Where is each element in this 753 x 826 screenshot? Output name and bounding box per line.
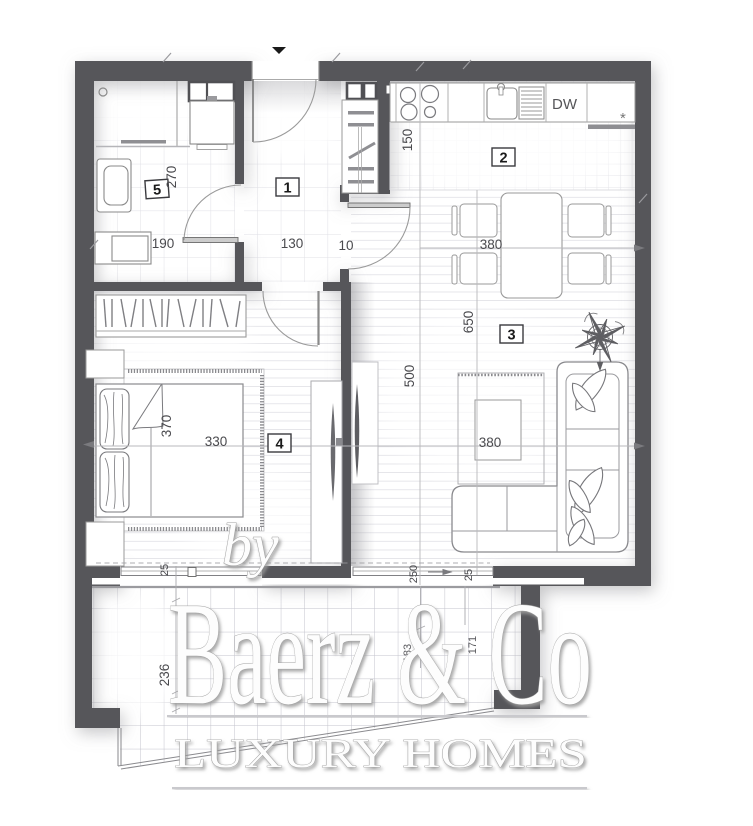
- svg-text:2: 2: [499, 151, 507, 167]
- svg-text:by: by: [222, 512, 279, 578]
- svg-text:LUXURY HOMES: LUXURY HOMES: [174, 730, 587, 776]
- svg-text:10: 10: [338, 238, 353, 253]
- svg-text:330: 330: [205, 434, 228, 449]
- svg-text:3: 3: [507, 328, 515, 344]
- svg-text:130: 130: [281, 236, 304, 251]
- svg-text:4: 4: [275, 437, 283, 453]
- svg-text:380: 380: [479, 435, 502, 450]
- svg-text:5: 5: [153, 182, 162, 199]
- svg-text:650: 650: [461, 311, 476, 334]
- svg-text:380: 380: [480, 237, 503, 252]
- svg-text:370: 370: [159, 415, 174, 438]
- svg-text:270: 270: [164, 166, 179, 189]
- svg-text:500: 500: [402, 365, 417, 388]
- svg-text:190: 190: [152, 236, 175, 251]
- svg-text:150: 150: [400, 129, 415, 152]
- svg-text:1: 1: [283, 181, 291, 197]
- svg-text:*: *: [620, 110, 626, 127]
- svg-text:DW: DW: [552, 96, 578, 113]
- svg-text:Baerz & Co: Baerz & Co: [168, 572, 592, 736]
